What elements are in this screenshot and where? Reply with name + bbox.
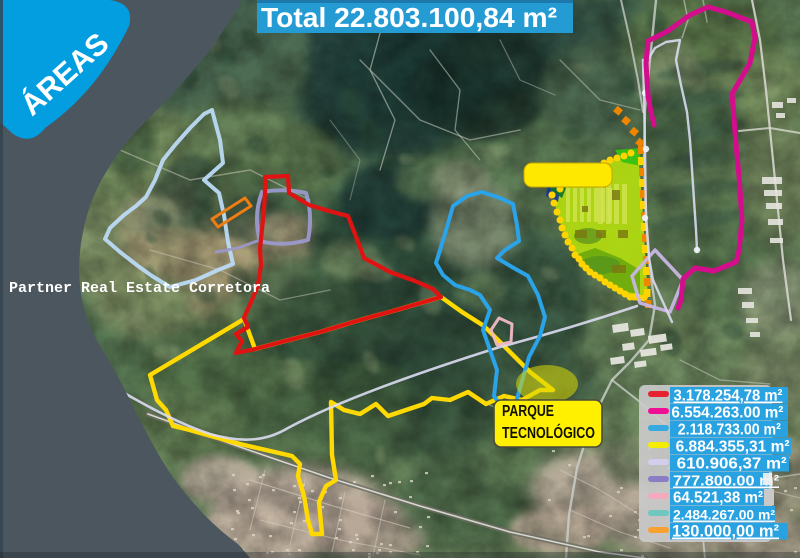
svg-text:2.118.733.00 m²: 2.118.733.00 m² <box>678 422 781 439</box>
svg-text:64.521,38 m²: 64.521,38 m² <box>673 490 763 507</box>
svg-text:130.000,00 m²: 130.000,00 m² <box>672 522 779 541</box>
svg-text:PARQUE: PARQUE <box>502 403 554 420</box>
svg-text:Partner Real Estate Corretora: Partner Real Estate Corretora <box>9 280 270 297</box>
svg-text:610.906,37 m²: 610.906,37 m² <box>677 456 787 473</box>
svg-text:3.178.254,78 m²: 3.178.254,78 m² <box>674 388 783 405</box>
svg-text:TECNOLÓGICO: TECNOLÓGICO <box>502 424 595 442</box>
svg-text:Total 22.803.100,84 m²: Total 22.803.100,84 m² <box>261 2 557 33</box>
svg-text:6.884.355,31 m²: 6.884.355,31 m² <box>676 439 790 456</box>
svg-text:2.484.267.00 m²: 2.484.267.00 m² <box>673 507 775 523</box>
svg-text:6.554.263.00 m²: 6.554.263.00 m² <box>671 405 783 422</box>
